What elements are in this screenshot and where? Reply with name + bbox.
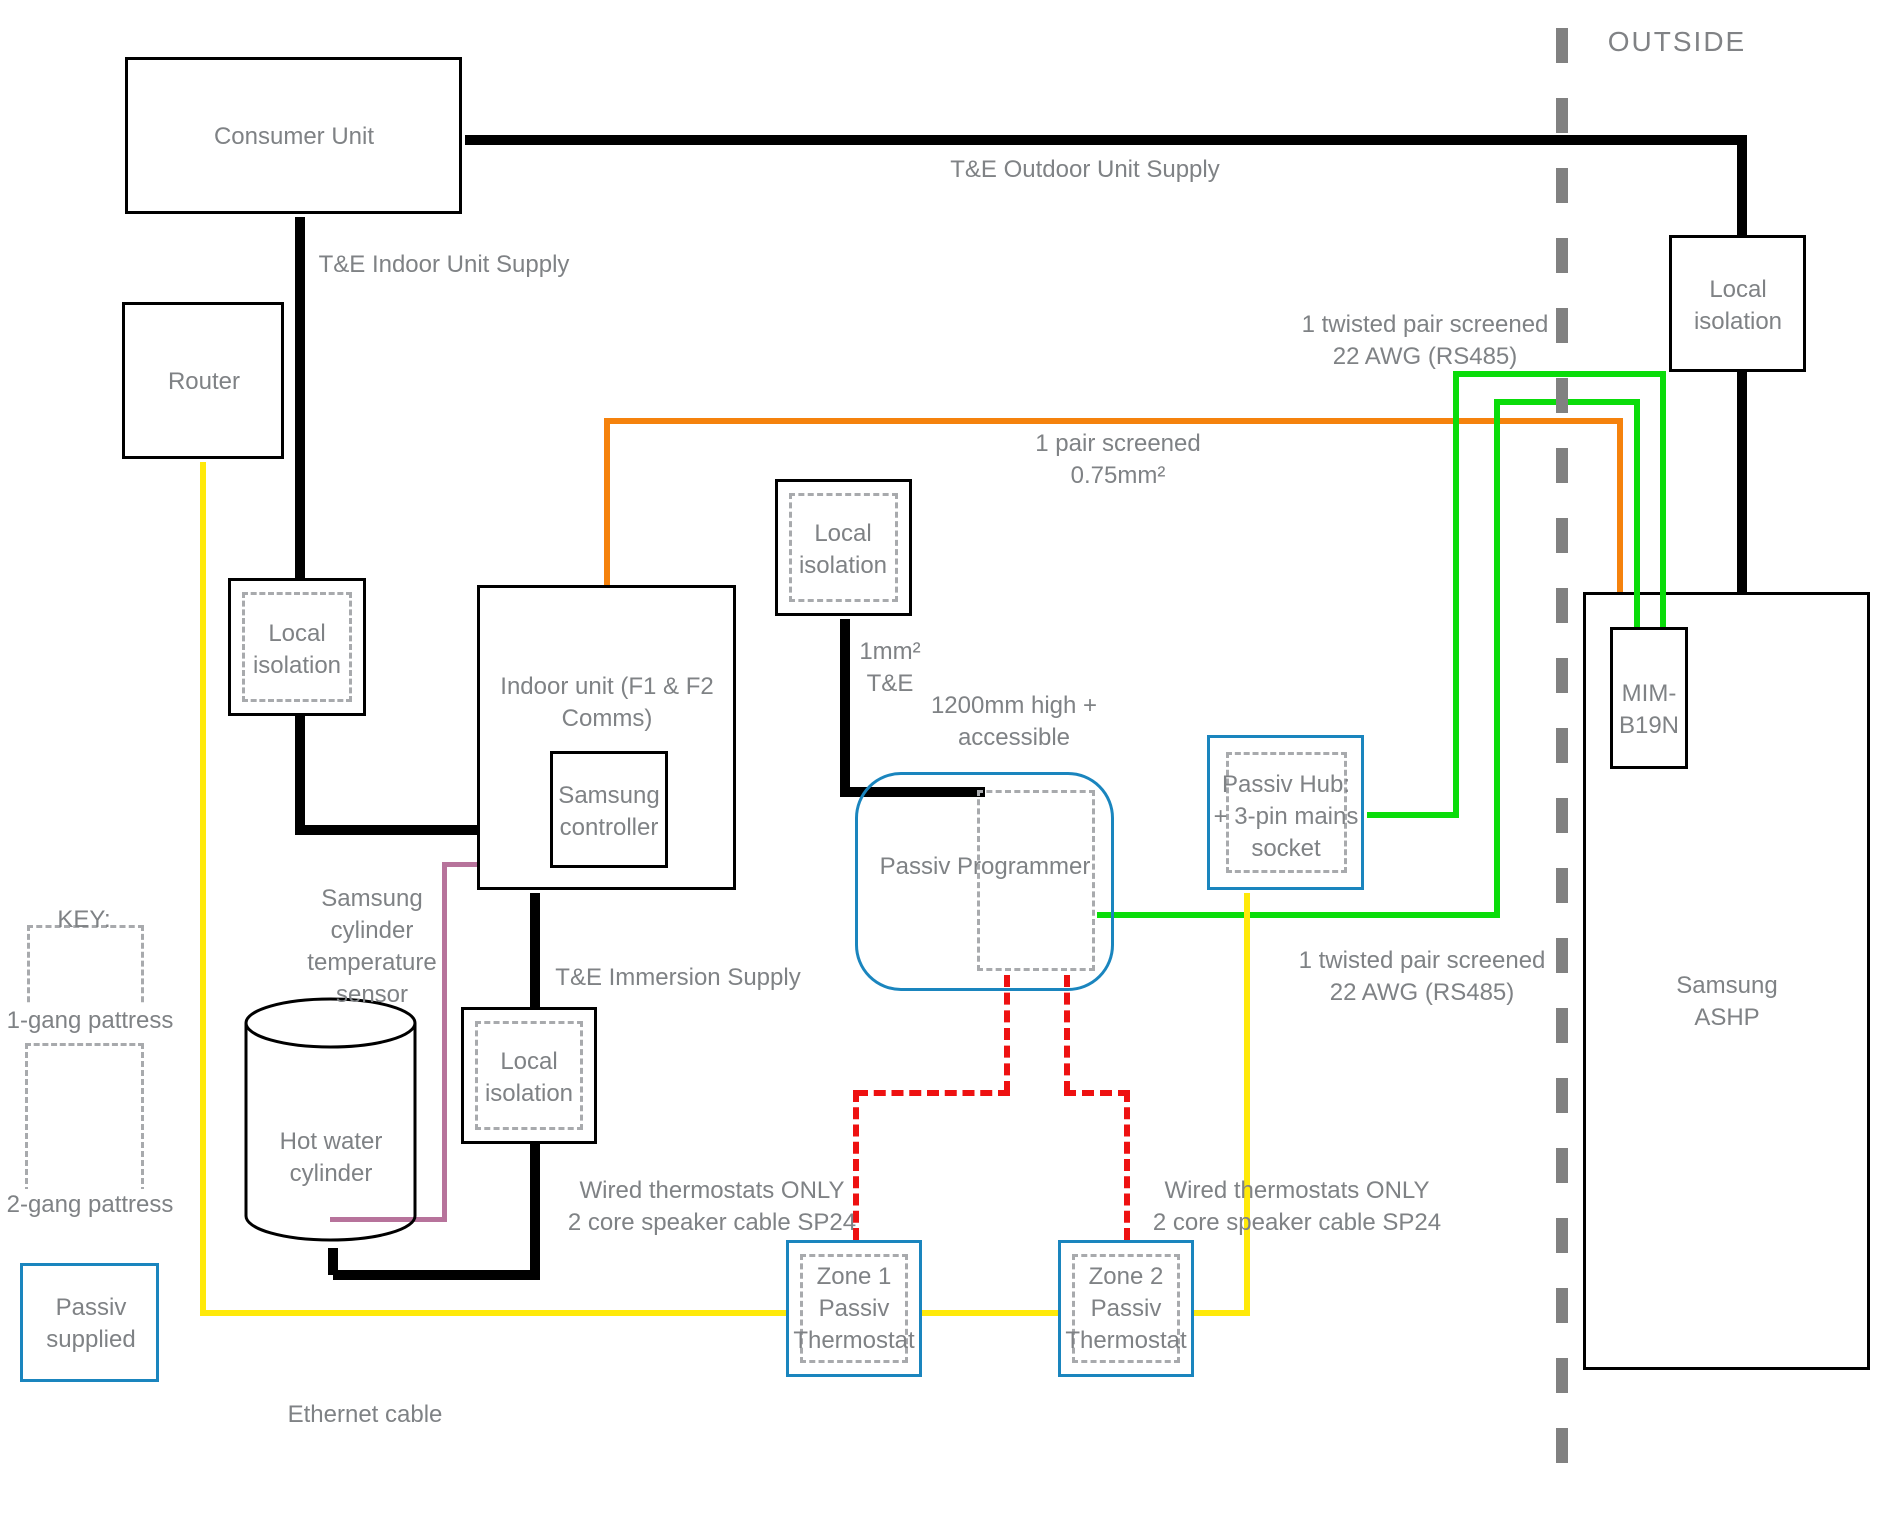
cylinder-sensor-wire [442, 862, 447, 1222]
te-immersion-supply-label: T&E Immersion Supply [555, 962, 800, 994]
hot-water-cylinder-label: Hot water cylinder [280, 1126, 383, 1190]
thermostat-wire [1064, 1090, 1130, 1096]
key-title-label: KEY: [57, 904, 110, 936]
indoor-unit-label: Indoor unit (F1 & F2 Comms) [500, 671, 713, 735]
te-outdoor-supply-wire [465, 135, 1747, 145]
te-indoor-supply-wire [295, 217, 305, 835]
zone1-thermostat-label: Zone 1 Passiv Thermostat [793, 1261, 914, 1357]
te-indoor-supply-label: T&E Indoor Unit Supply [319, 249, 570, 281]
te-immersion-supply-wire [328, 1248, 338, 1275]
wiring-diagram: OUTSIDE Consumer Unit Router Local isola… [0, 0, 1884, 1522]
thermostat-wire [856, 1090, 1010, 1096]
te-immersion-supply-wire [333, 1270, 540, 1280]
rs485-hub-wire [1660, 371, 1666, 627]
outside-divider-line [1556, 28, 1568, 1482]
cylinder-sensor-label: Samsung cylinder temperature sensor [307, 883, 436, 1011]
te-outdoor-supply-label: T&E Outdoor Unit Supply [950, 154, 1219, 186]
rs485-top-label: 1 twisted pair screened 22 AWG (RS485) [1302, 309, 1549, 373]
1200mm-high-label: 1200mm high + accessible [931, 690, 1097, 754]
rs485-bottom-label: 1 twisted pair screened 22 AWG (RS485) [1299, 945, 1546, 1009]
local-isolation-label-4: Local isolation [1694, 274, 1782, 338]
hot-water-cylinder-shape [243, 996, 418, 1244]
rs485-programmer-wire [1634, 399, 1640, 627]
consumer-unit-label: Consumer Unit [214, 121, 374, 153]
rs485-hub-wire [1453, 371, 1459, 818]
programmer-supply-wire [840, 619, 850, 797]
key-1gang-label: 1-gang pattress [3, 1005, 178, 1037]
passiv-programmer-label: Passiv Programmer [880, 851, 1091, 883]
1mm2-te-label: 1mm² T&E [859, 636, 920, 700]
key-passiv-supplied-label: Passiv supplied [46, 1292, 135, 1356]
key-2gang-label: 2-gang pattress [3, 1189, 178, 1221]
samsung-controller-label: Samsung controller [558, 780, 659, 844]
wired-thermostats-right-label: Wired thermostats ONLY 2 core speaker ca… [1153, 1175, 1441, 1239]
ethernet-wire [200, 462, 206, 1316]
sensor-pair-wire [1617, 418, 1623, 592]
zone2-thermostat-label: Zone 2 Passiv Thermostat [1065, 1261, 1186, 1357]
router-label: Router [168, 366, 240, 398]
thermostat-wire [1064, 975, 1070, 1093]
local-isolation-label-2: Local isolation [799, 518, 887, 582]
cylinder-sensor-wire [442, 862, 477, 867]
samsung-ashp-label: Samsung ASHP [1649, 970, 1806, 1034]
rs485-programmer-wire [1494, 399, 1500, 918]
sensor-pair-wire [604, 418, 610, 585]
local-isolation-label-1: Local isolation [253, 618, 341, 682]
pair-screened-label: 1 pair screened 0.75mm² [1035, 428, 1200, 492]
thermostat-wire-zone2 [1124, 1090, 1130, 1240]
local-isolation-label-3: Local isolation [485, 1046, 573, 1110]
wired-thermostats-left-label: Wired thermostats ONLY 2 core speaker ca… [568, 1175, 856, 1239]
sensor-pair-wire [604, 418, 1623, 424]
ethernet-cable-label: Ethernet cable [288, 1399, 443, 1431]
te-indoor-supply-wire [295, 825, 482, 835]
thermostat-wire [1004, 975, 1010, 1093]
mim-b19n-label: MIM- B19N [1619, 678, 1679, 742]
rs485-programmer-wire [1097, 912, 1500, 918]
outside-label: OUTSIDE [1608, 26, 1746, 58]
passiv-hub-label: Passiv Hub: + 3-pin mains socket [1214, 769, 1359, 865]
ethernet-wire [1244, 893, 1250, 1316]
rs485-hub-wire [1367, 812, 1459, 818]
